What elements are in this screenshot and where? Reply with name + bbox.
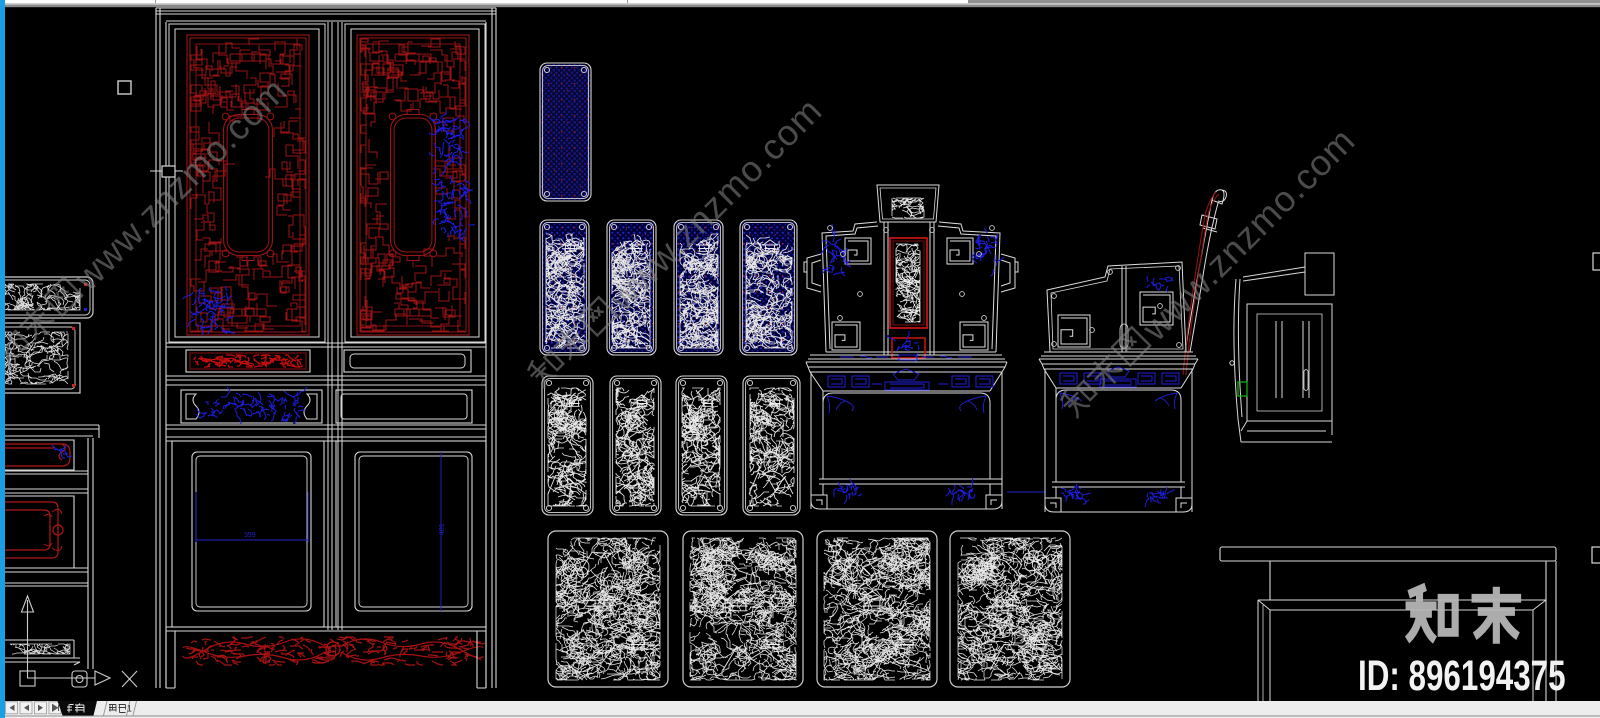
svg-text:359: 359 [244,532,256,539]
svg-text:ID: 896194375: ID: 896194375 [1358,651,1566,699]
svg-text:1: 1 [127,704,132,715]
svg-text:481: 481 [439,523,446,535]
